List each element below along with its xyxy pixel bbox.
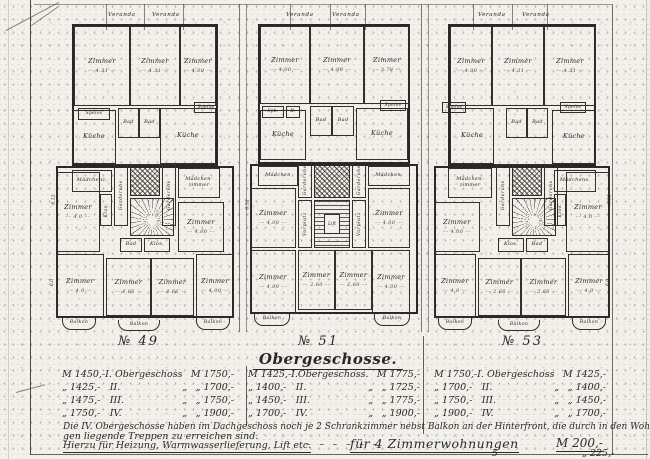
price-cell: „ 1450,- xyxy=(568,395,606,408)
price-cell: IV. xyxy=(296,408,369,421)
price-cell: „ 1750,- xyxy=(62,408,110,421)
price-row: „ 1900,-IV.„„ 1700,- xyxy=(434,408,606,421)
price-cell: „ 1425,- xyxy=(62,382,110,395)
price-cell: II. xyxy=(482,382,555,395)
price-cell: I. Obergeschoss xyxy=(105,369,181,382)
price-row: M 1450,-I. ObergeschossM 1750,- xyxy=(62,369,234,382)
price-cell: „ 1750,- xyxy=(434,395,482,408)
price-cell: II. xyxy=(296,382,369,395)
price-cell: „ 1450,- xyxy=(248,395,296,408)
price-cell: „ 1900,- xyxy=(434,408,482,421)
price-tables: M 1450,-I. ObergeschossM 1750,-„ 1425,-I… xyxy=(0,0,650,459)
services-for5-label: 5 xyxy=(492,449,498,459)
price-row: „ 1750,-IV.„„ 1900,- xyxy=(62,408,234,421)
price-cell: „ xyxy=(182,395,195,408)
services-line: Hierzu für Heizung, Warmwasserlieferung,… xyxy=(63,440,311,453)
price-cell: „ xyxy=(368,395,381,408)
price-cell: „ xyxy=(554,395,567,408)
price-cell: M 1750,- xyxy=(191,369,234,382)
price-table: M 1425,-I.Obergeschoss.M 1775,-„ 1400,-I… xyxy=(248,369,420,421)
price-cell: IV. xyxy=(110,408,183,421)
price-cell: „ xyxy=(182,408,195,421)
price-cell: „ 1400,- xyxy=(568,382,606,395)
price-cell: II. xyxy=(110,382,183,395)
price-cell: „ 1475,- xyxy=(62,395,110,408)
price-cell: M 1775,- xyxy=(377,369,420,382)
price-cell: M 1750,- xyxy=(434,369,477,382)
price-cell: „ xyxy=(554,408,567,421)
price-row: „ 1425,-II.„„ 1700,- xyxy=(62,382,234,395)
price-cell: III. xyxy=(482,395,555,408)
building-number: № 49 xyxy=(118,334,159,349)
price-cell: „ xyxy=(554,382,567,395)
price-row: „ 1475,-III.„„ 1750,- xyxy=(62,395,234,408)
building-number: № 53 xyxy=(502,334,543,349)
price-cell: „ 1700,- xyxy=(568,408,606,421)
price-cell: „ 1700,- xyxy=(196,382,234,395)
price-row: „ 1750,-III.„„ 1450,- xyxy=(434,395,606,408)
price-row: M 1425,-I.Obergeschoss.M 1775,- xyxy=(248,369,420,382)
price-cell: „ xyxy=(368,382,381,395)
price-cell: „ 1900,- xyxy=(196,408,234,421)
scanned-floor-plan-sheet: GarderobeGarderobeKlos.Zimmer–– 4.31 ––Z… xyxy=(0,0,650,459)
price-row: „ 1400,-II.„„ 1725,- xyxy=(248,382,420,395)
price-cell: „ 1700,- xyxy=(248,408,296,421)
price-cell: „ 1750,- xyxy=(196,395,234,408)
price-cell: „ 1775,- xyxy=(382,395,420,408)
price-row: „ 1450,-III.„„ 1775,- xyxy=(248,395,420,408)
price-cell xyxy=(553,369,563,382)
price-cell: III. xyxy=(296,395,369,408)
price-cell: M 1425,- xyxy=(563,369,606,382)
price-cell: IV. xyxy=(482,408,555,421)
price-cell: I. Obergeschoss xyxy=(477,369,553,382)
price-table: M 1450,-I. ObergeschossM 1750,-„ 1425,-I… xyxy=(62,369,234,421)
price-cell xyxy=(367,369,377,382)
building-number: № 51 xyxy=(298,334,339,349)
price-cell: M 1425,- xyxy=(248,369,291,382)
price-cell: „ 1700,- xyxy=(434,382,482,395)
price-cell: M 1450,- xyxy=(62,369,105,382)
price-row: M 1750,-I. ObergeschossM 1425,- xyxy=(434,369,606,382)
price-cell: „ 1725,- xyxy=(382,382,420,395)
price-table: M 1750,-I. ObergeschossM 1425,-„ 1700,-I… xyxy=(434,369,606,421)
price-cell: „ xyxy=(368,408,381,421)
services-price5: „ 225,- xyxy=(582,448,614,459)
price-cell: „ xyxy=(182,382,195,395)
price-cell: III. xyxy=(110,395,183,408)
price-cell xyxy=(181,369,191,382)
price-row: „ 1700,-II.„„ 1400,- xyxy=(434,382,606,395)
price-cell: „ 1900,- xyxy=(382,408,420,421)
price-cell: „ 1400,- xyxy=(248,382,296,395)
price-cell: I.Obergeschoss. xyxy=(291,369,367,382)
price-row: „ 1700,-IV.„„ 1900,- xyxy=(248,408,420,421)
